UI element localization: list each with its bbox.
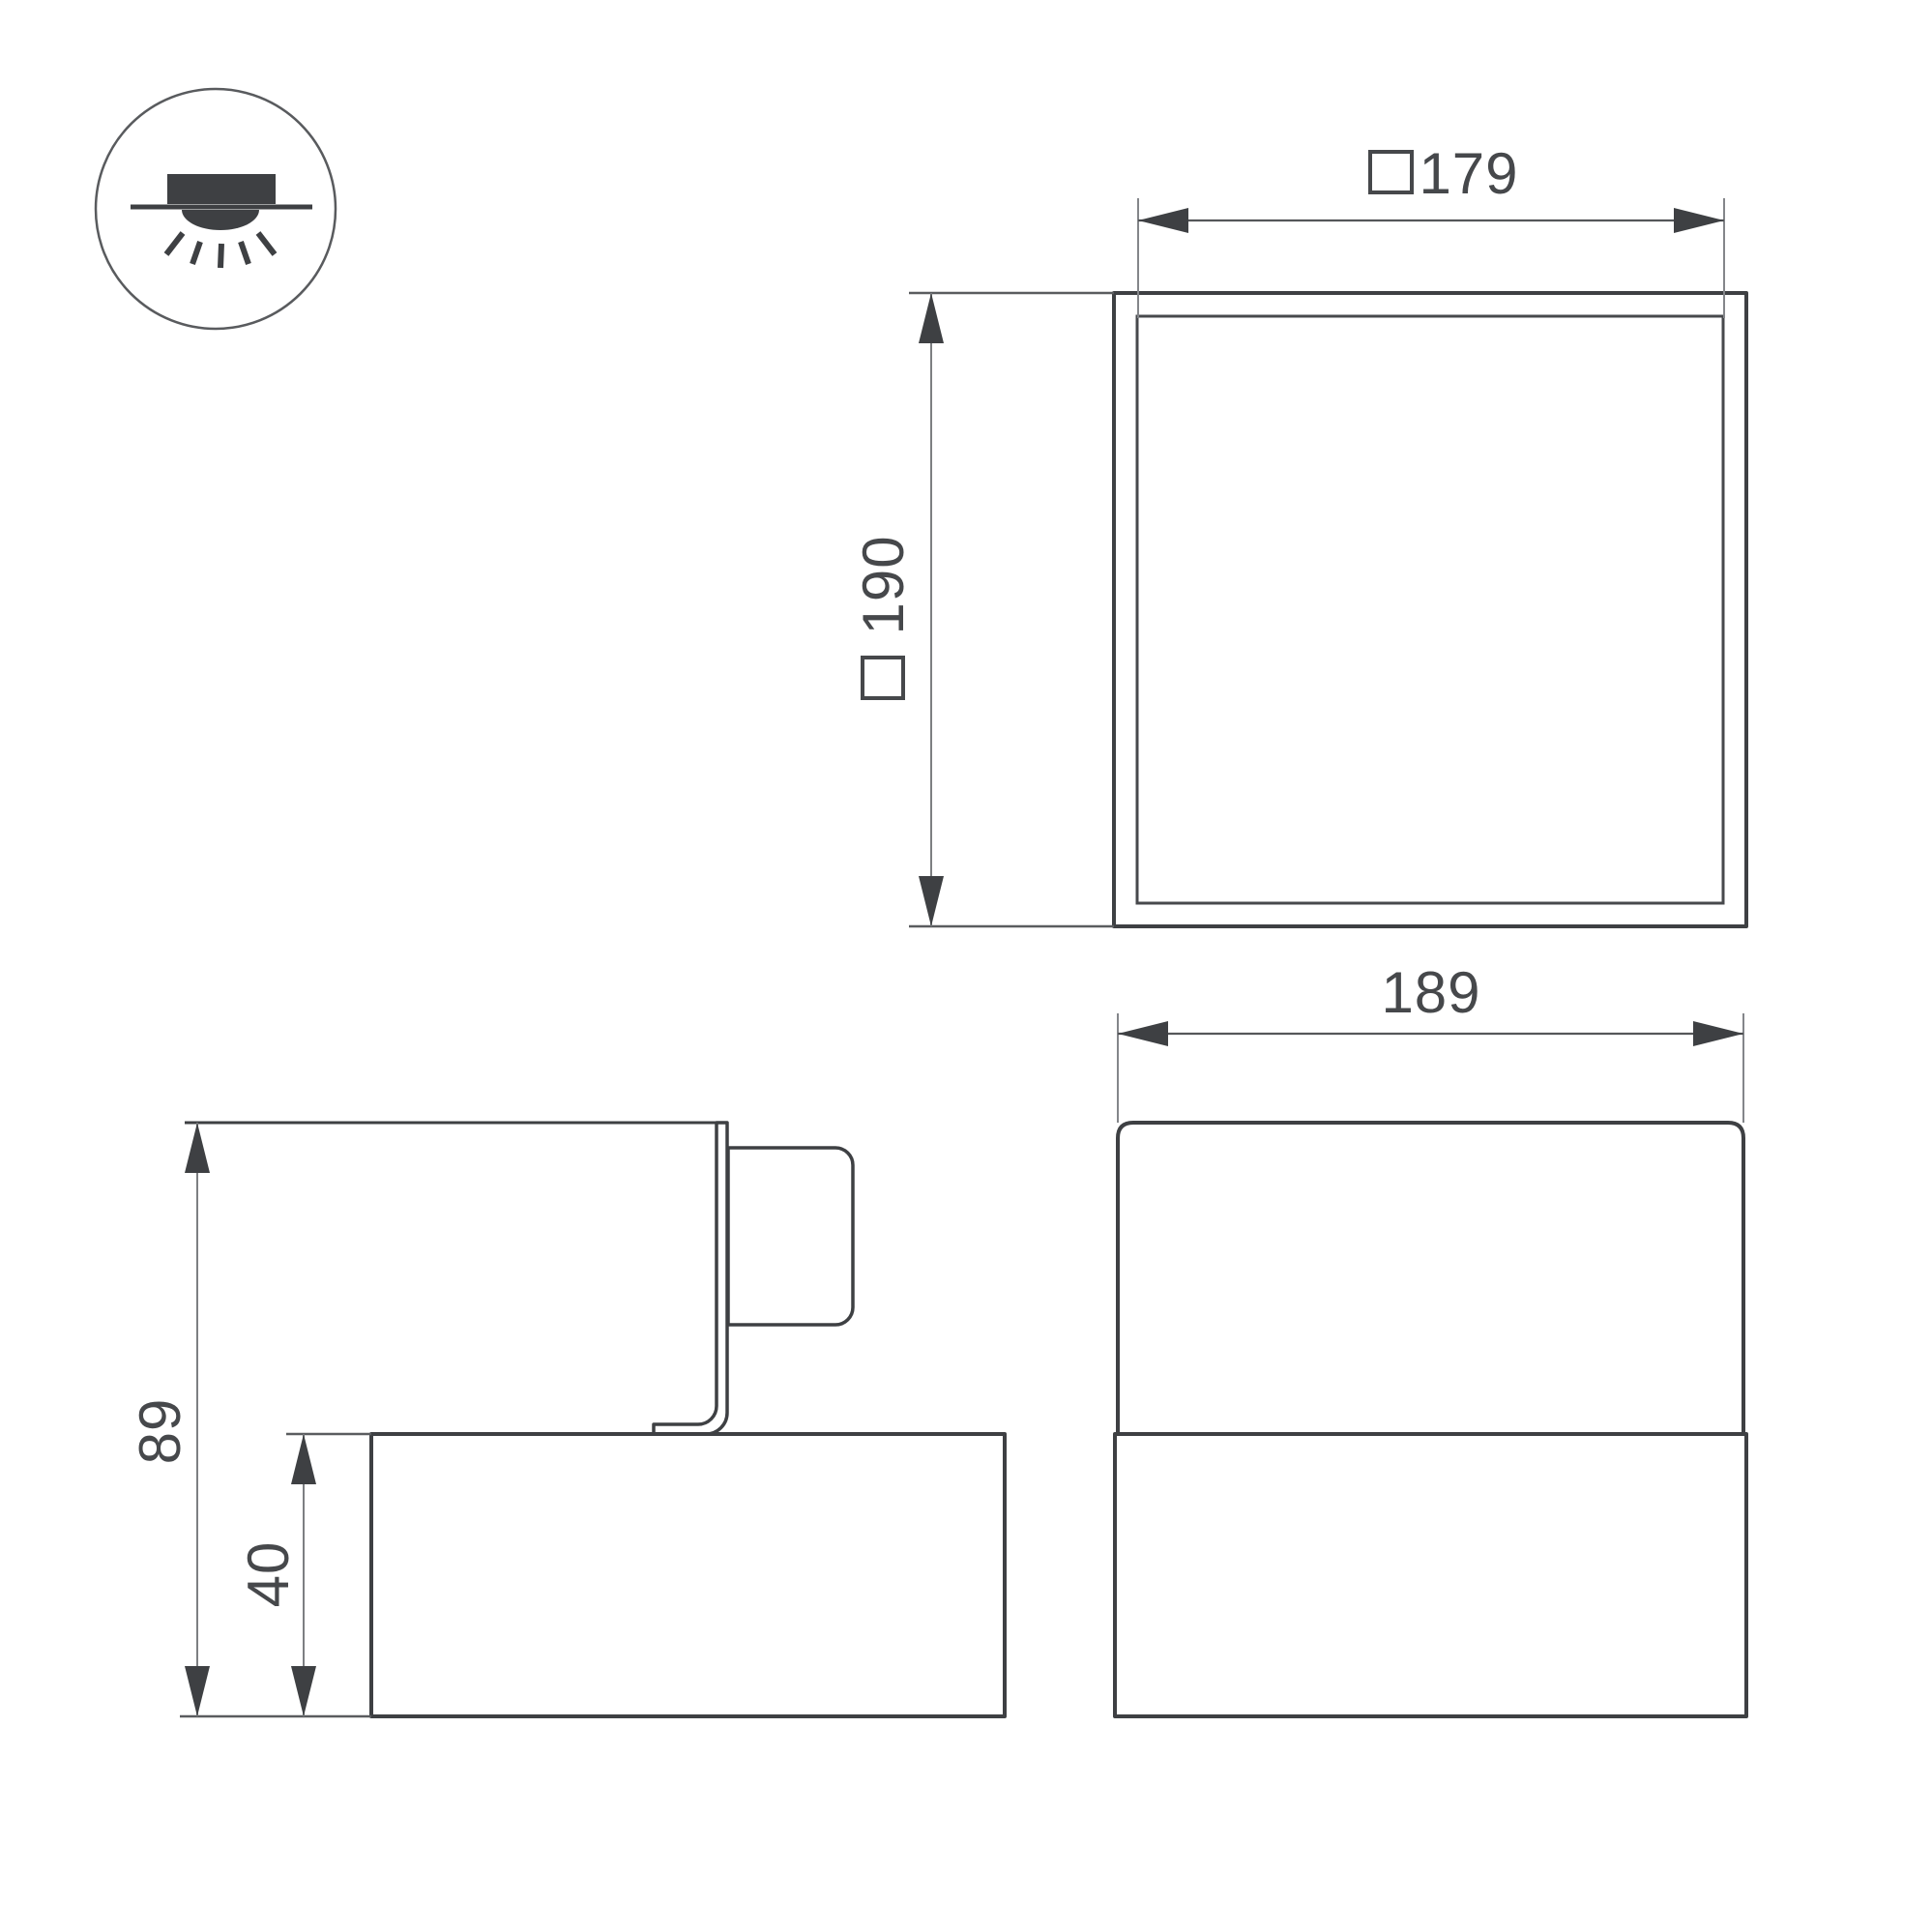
lamp-dome-icon [182, 210, 259, 230]
dimension-width-189: 189 [1118, 960, 1743, 1123]
arrowhead-up [919, 293, 944, 343]
driver-box [728, 1148, 853, 1325]
dimension-drawing: 179 190 [0, 0, 1932, 1932]
rotated-dimension-label: 89 [128, 1398, 192, 1465]
recessed-ceiling-downlight-icon [131, 174, 312, 268]
arrowhead-down [919, 876, 944, 926]
side-view-body [371, 1434, 1005, 1716]
front-view-upper-body [1118, 1123, 1743, 1434]
square-dimension-symbol [1370, 152, 1412, 192]
rotated-dimension-label: 40 [236, 1541, 301, 1608]
mounting-bracket [654, 1123, 727, 1434]
mounting-type-icon [96, 89, 336, 329]
arrowhead-left [1138, 208, 1188, 233]
dimension-height-190: 190 [851, 293, 1114, 926]
front-view: 189 [1115, 960, 1746, 1716]
lamp-housing-icon [167, 174, 276, 204]
top-view: 179 190 [851, 141, 1746, 926]
technical-drawing-page: 179 190 [0, 0, 1932, 1932]
arrowhead-left [1118, 1021, 1168, 1046]
arrowhead-down [291, 1666, 316, 1716]
top-view-outer-square [1114, 293, 1746, 926]
top-view-inner-square [1137, 316, 1723, 903]
arrowhead-up [291, 1434, 316, 1484]
side-view: 89 40 [128, 1123, 1005, 1716]
dimension-value: 190 [851, 535, 916, 634]
front-view-lower-body [1115, 1434, 1746, 1716]
dimension-value: 89 [128, 1398, 192, 1465]
dimension-value: 189 [1381, 960, 1480, 1025]
dimension-body-height-40: 40 [236, 1434, 316, 1716]
dimension-total-height-89: 89 [128, 1123, 210, 1716]
arrowhead-up [185, 1123, 210, 1173]
arrowhead-right [1693, 1021, 1743, 1046]
square-dimension-symbol [863, 658, 903, 698]
rotated-dimension-label: 190 [851, 535, 916, 698]
arrowhead-down [185, 1666, 210, 1716]
light-rays-icon [166, 233, 275, 268]
dimension-value: 179 [1419, 141, 1518, 206]
arrowhead-right [1674, 208, 1724, 233]
dimension-value: 40 [236, 1541, 301, 1608]
